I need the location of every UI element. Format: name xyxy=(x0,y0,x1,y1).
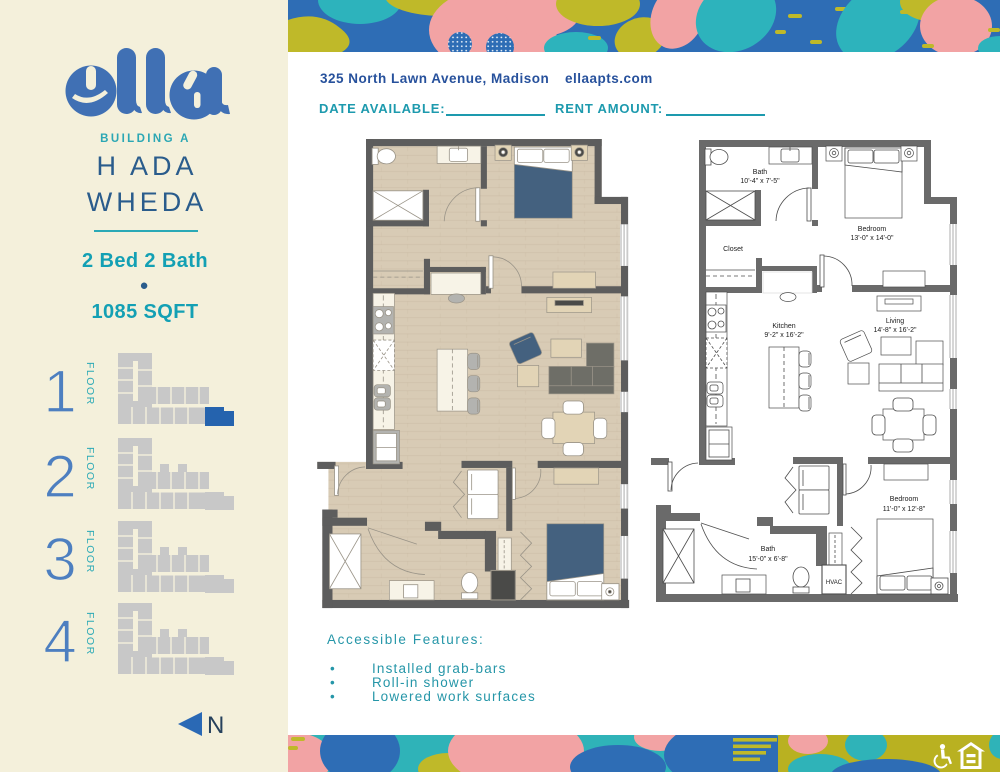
svg-text:HVAC: HVAC xyxy=(826,580,843,586)
svg-text:Living: Living xyxy=(886,318,904,325)
svg-text:FLOOR: FLOOR xyxy=(84,530,96,574)
svg-text:Closet: Closet xyxy=(723,246,743,253)
svg-text:FLOOR: FLOOR xyxy=(84,447,96,491)
svg-text:Bath: Bath xyxy=(753,169,768,176)
svg-text:Kitchen: Kitchen xyxy=(772,323,795,330)
svg-text:14'-8" x 16'-2": 14'-8" x 16'-2" xyxy=(873,327,917,334)
svg-text:15'-0" x 6'-8": 15'-0" x 6'-8" xyxy=(748,556,788,563)
svg-text:10'-4" x 7'-5": 10'-4" x 7'-5" xyxy=(740,178,780,185)
svg-text:13'-0" x 14'-0": 13'-0" x 14'-0" xyxy=(850,235,894,242)
svg-text:1: 1 xyxy=(43,358,76,425)
svg-text:N: N xyxy=(207,712,224,739)
svg-text:11'-0" x 12'-8": 11'-0" x 12'-8" xyxy=(883,506,926,513)
svg-text:Bedroom: Bedroom xyxy=(858,226,887,233)
svg-text:4: 4 xyxy=(43,608,76,675)
svg-text:Bedroom: Bedroom xyxy=(890,496,919,503)
svg-text:FLOOR: FLOOR xyxy=(84,362,96,406)
svg-text:FLOOR: FLOOR xyxy=(84,612,96,656)
svg-text:3: 3 xyxy=(43,526,76,593)
svg-text:Bath: Bath xyxy=(761,546,776,553)
svg-text:9'-2" x 16'-2": 9'-2" x 16'-2" xyxy=(764,332,804,339)
svg-text:2: 2 xyxy=(43,443,76,510)
